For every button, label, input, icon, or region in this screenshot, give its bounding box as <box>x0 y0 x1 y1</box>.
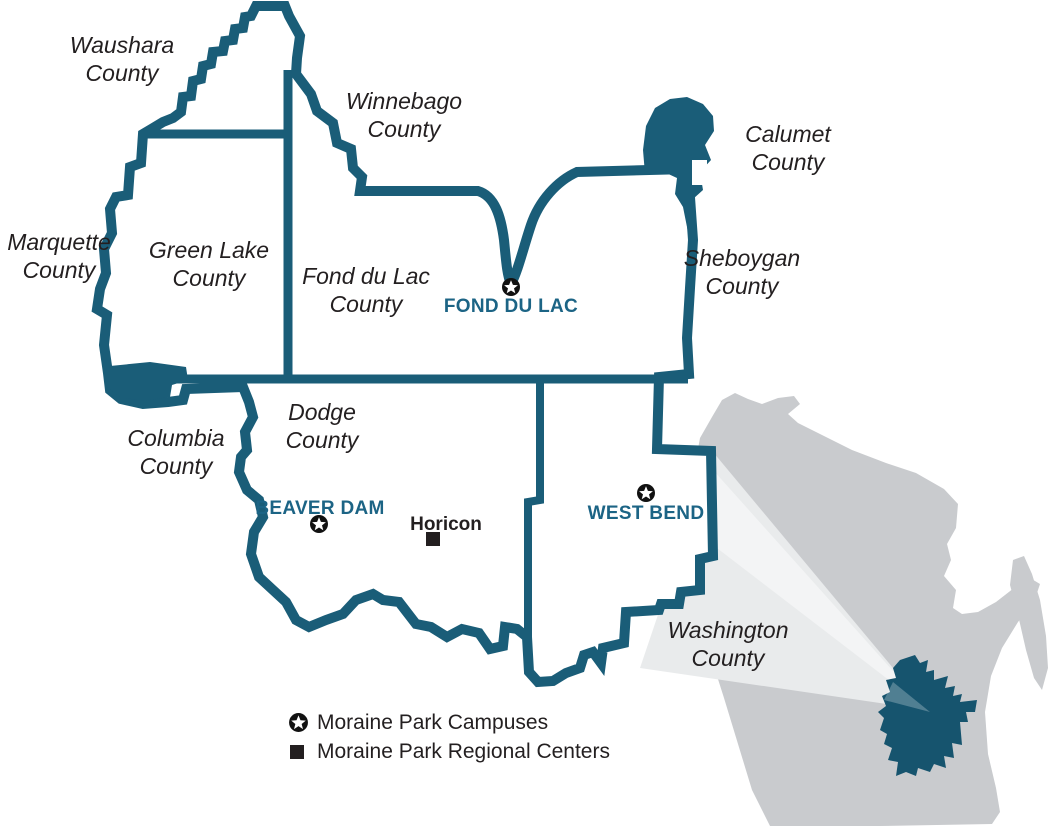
campus-label-west-bend: WEST BEND <box>588 503 705 525</box>
county-label-columbia: ColumbiaCounty <box>127 424 224 480</box>
legend-campuses-label: Moraine Park Campuses <box>317 711 548 735</box>
legend-regional-centers-row: Moraine Park Regional Centers <box>288 737 610 766</box>
county-label-dodge: DodgeCounty <box>286 398 359 454</box>
county-label-washington: WashingtonCounty <box>667 616 788 672</box>
county-label-green-lake: Green LakeCounty <box>149 236 269 292</box>
county-label-waushara: WausharaCounty <box>70 31 174 87</box>
district-map: WausharaCounty WinnebagoCounty CalumetCo… <box>0 0 1056 830</box>
county-label-calumet: CalumetCounty <box>745 120 831 176</box>
county-label-winnebago: WinnebagoCounty <box>346 87 462 143</box>
campus-star-icon <box>636 483 656 503</box>
legend-square-icon <box>288 745 310 759</box>
campus-label-fond-du-lac: FOND DU LAC <box>444 296 578 318</box>
county-label-sheboygan: SheboyganCounty <box>684 244 800 300</box>
campus-star-icon <box>501 277 521 297</box>
map-legend: Moraine Park Campuses Moraine Park Regio… <box>288 708 610 766</box>
campus-label-beaver-dam: BEAVER DAM <box>255 498 384 520</box>
regional-center-square-icon <box>426 532 440 546</box>
calumet-notch <box>692 160 707 185</box>
map-canvas <box>0 0 1056 830</box>
legend-campus-star-icon <box>288 712 310 733</box>
legend-campuses-row: Moraine Park Campuses <box>288 708 610 737</box>
county-label-marquette: MarquetteCounty <box>7 228 111 284</box>
county-label-fond-du-lac: Fond du LacCounty <box>302 262 430 318</box>
legend-regional-centers-label: Moraine Park Regional Centers <box>317 740 610 764</box>
regional-center-label-horicon: Horicon <box>410 514 482 536</box>
